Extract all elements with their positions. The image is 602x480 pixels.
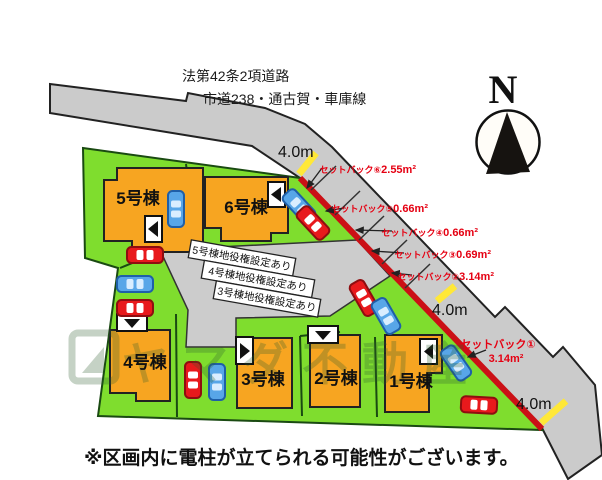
disclaimer-note: ※区画内に電柱が立てられる可能性がございます。 [84, 446, 519, 469]
road-route-label: 市道238・通古賀・車庫線 [203, 91, 366, 107]
entrance-marker-6 [268, 182, 285, 207]
setback-label-2: セットバック②3.14m² [398, 271, 495, 283]
plot-label-3: 3号棟 [241, 369, 285, 389]
plot-label-6: 6号棟 [224, 197, 268, 217]
setback-label-5: セットバック⑤0.66m² [332, 203, 429, 215]
compass-north-label: N [489, 67, 518, 112]
plot-label-4: 4号棟 [123, 352, 167, 372]
compass: N [477, 67, 540, 174]
setback-label-6: セットバック⑥2.55m² [320, 164, 417, 176]
car-blue-plot5 [168, 191, 184, 227]
setback-label-4: セットバック④0.66m² [382, 227, 479, 239]
setback-label-3: セットバック③0.69m² [395, 249, 492, 261]
svg-text:セットバック①: セットバック① [460, 338, 535, 351]
lot-layout-map: 5号棟地役権設定あり 4号棟地役権設定あり 3号棟地役権設定あり ヤマダ不動産 … [0, 0, 602, 480]
road-width-bottom: 4.0m [516, 396, 552, 413]
car-red-plot1 [461, 396, 498, 414]
plot-label-5: 5号棟 [116, 188, 160, 208]
plot-label-1: 1号棟 [389, 371, 433, 391]
entrance-marker-5 [145, 216, 162, 242]
svg-text:3.14m²: 3.14m² [489, 353, 524, 365]
road-law-label: 法第42条2項道路 [182, 68, 289, 84]
plot-label-2: 2号棟 [314, 368, 358, 388]
road-width-top: 4.0m [278, 144, 314, 161]
car-red-plot4 [117, 300, 153, 316]
site-plan-svg: 5号棟地役権設定あり 4号棟地役権設定あり 3号棟地役権設定あり ヤマダ不動産 … [0, 0, 602, 480]
road-width-mid: 4.0m [432, 302, 468, 319]
car-red-plot5 [127, 247, 163, 263]
car-blue-plot4 [117, 276, 153, 292]
